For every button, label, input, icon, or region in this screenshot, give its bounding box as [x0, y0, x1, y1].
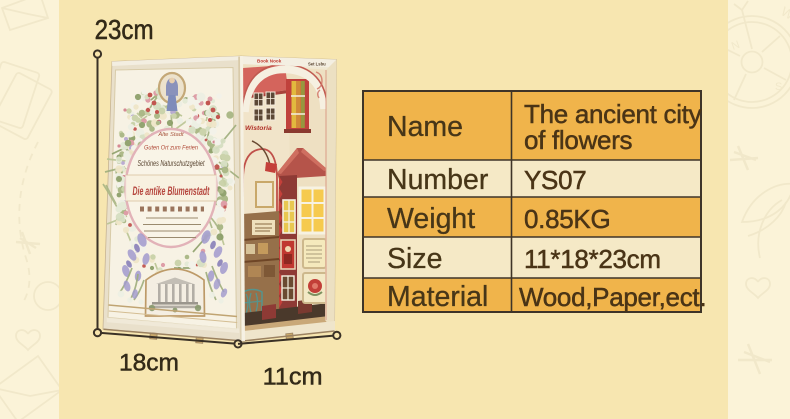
- svg-text:Wistoria: Wistoria: [245, 125, 272, 132]
- svg-text:Set Lsbu: Set Lsbu: [308, 62, 326, 67]
- svg-text:Guten Ort zum Ferien: Guten Ort zum Ferien: [144, 145, 198, 152]
- svg-text:23cm: 23cm: [95, 14, 154, 45]
- svg-text:Book Nook: Book Nook: [257, 59, 282, 64]
- svg-text:Alte Stadt: Alte Stadt: [157, 132, 184, 138]
- svg-text:18cm: 18cm: [119, 350, 179, 377]
- svg-text:Schönes Naturschutzgebiet: Schönes Naturschutzgebiet: [138, 159, 206, 168]
- svg-text:11cm: 11cm: [263, 364, 323, 391]
- svg-text:Die antike Blumenstadt: Die antike Blumenstadt: [133, 184, 211, 198]
